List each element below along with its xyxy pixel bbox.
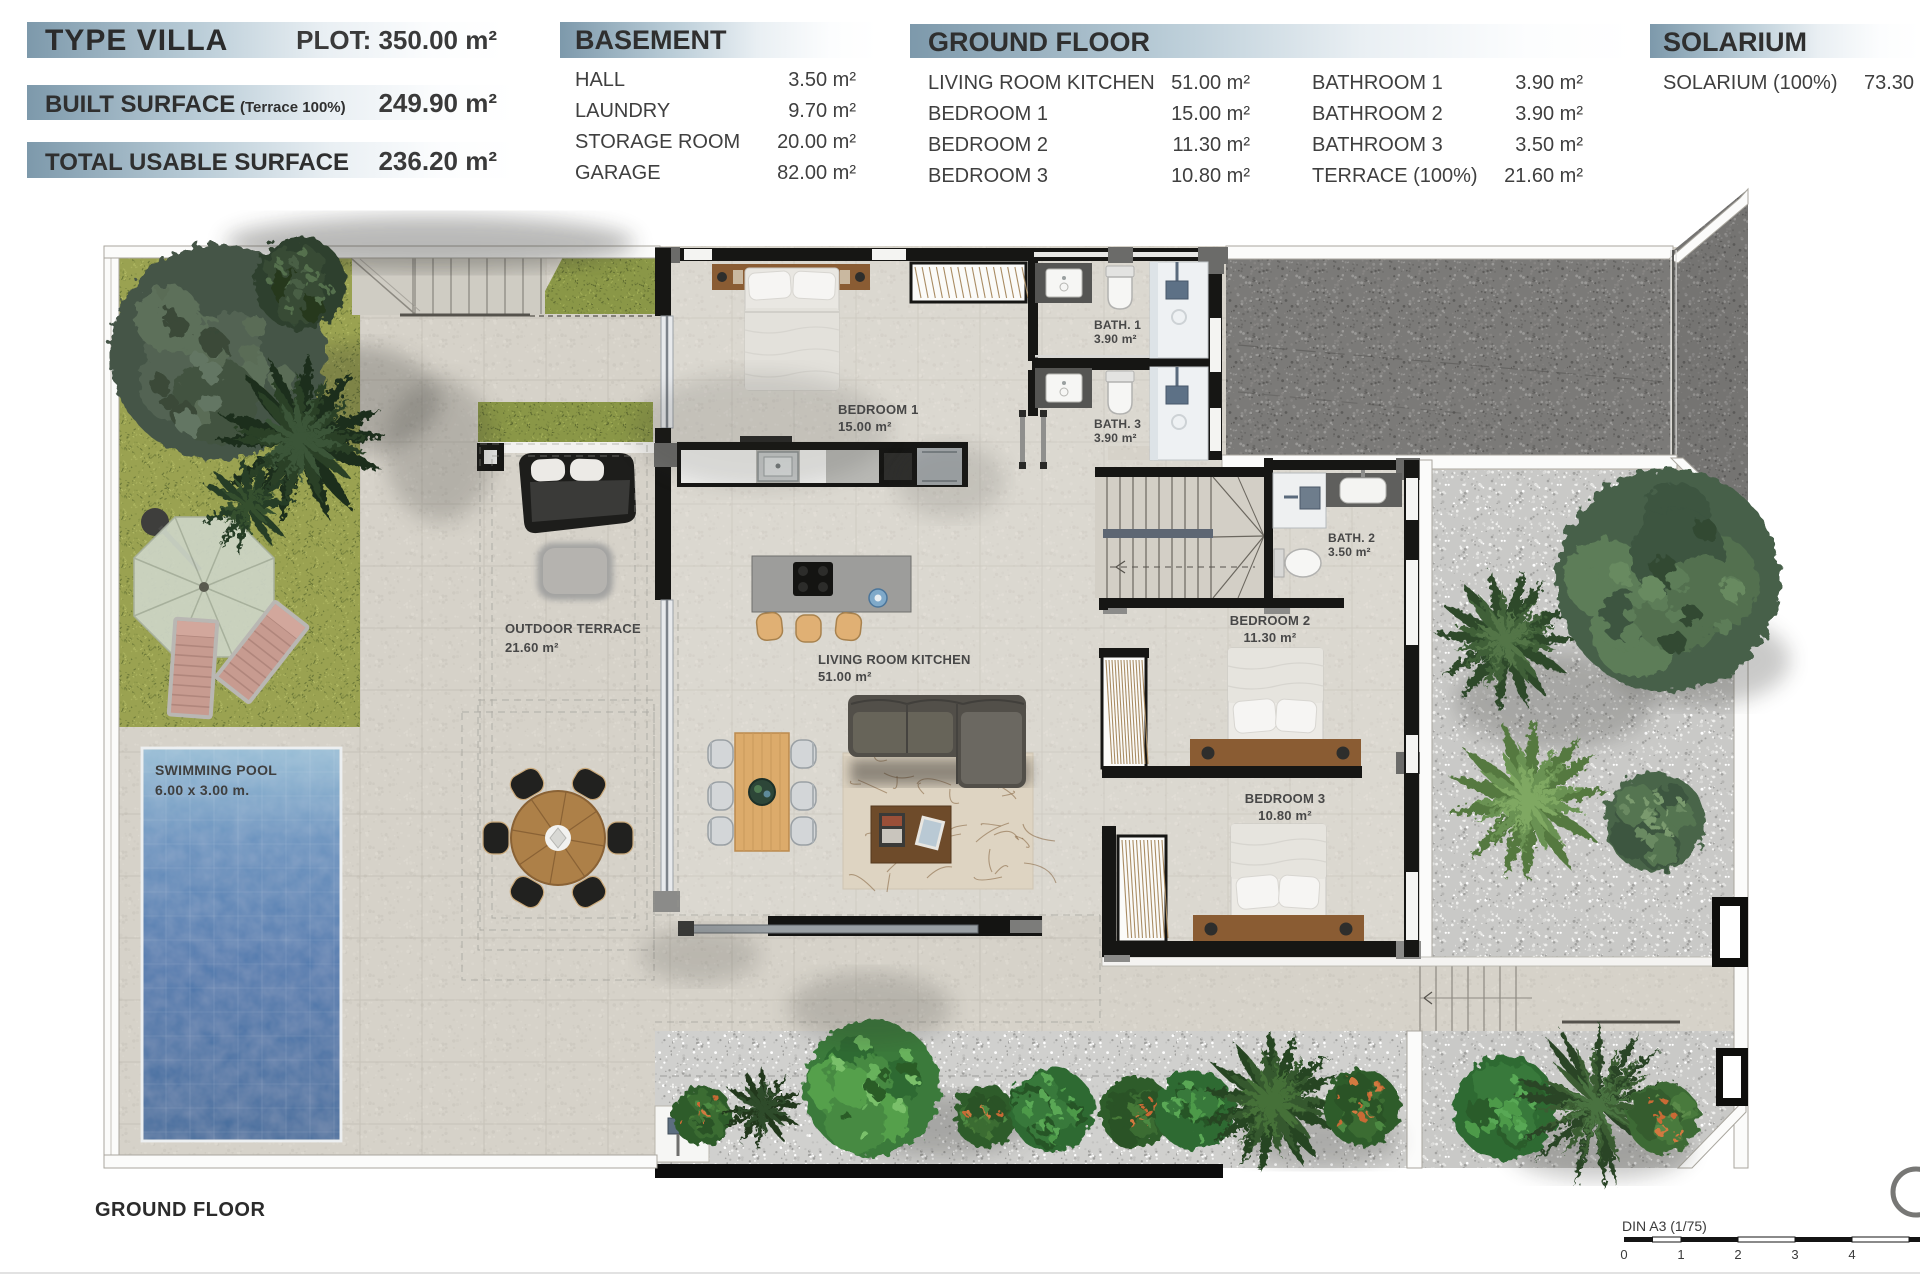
svg-text:9.70 m²: 9.70 m²: [788, 100, 856, 122]
svg-text:HALL: HALL: [575, 69, 625, 91]
svg-text:20.00 m²: 20.00 m²: [777, 131, 856, 153]
svg-text:GROUND FLOOR: GROUND FLOOR: [928, 27, 1150, 57]
svg-text:GARAGE: GARAGE: [575, 162, 661, 184]
svg-text:OUTDOOR TERRACE: OUTDOOR TERRACE: [505, 621, 641, 636]
svg-text:11.30 m²: 11.30 m²: [1244, 630, 1297, 645]
svg-text:3.90 m²: 3.90 m²: [1094, 332, 1137, 346]
svg-text:SWIMMING POOL: SWIMMING POOL: [155, 762, 277, 778]
svg-text:15.00 m²: 15.00 m²: [838, 419, 892, 434]
svg-text:PLOT: 350.00 m²: PLOT: 350.00 m²: [296, 25, 497, 55]
svg-text:(Terrace 100%): (Terrace 100%): [240, 99, 346, 116]
svg-text:11.30 m²: 11.30 m²: [1173, 134, 1251, 156]
svg-text:TYPE VILLA: TYPE VILLA: [45, 24, 228, 57]
svg-text:BEDROOM 3: BEDROOM 3: [928, 165, 1048, 187]
svg-text:BASEMENT: BASEMENT: [575, 25, 727, 55]
svg-text:BEDROOM 2: BEDROOM 2: [928, 134, 1048, 156]
svg-text:DIN A3 (1/75): DIN A3 (1/75): [1622, 1218, 1707, 1234]
svg-text:TOTAL USABLE SURFACE: TOTAL USABLE SURFACE: [45, 149, 349, 176]
svg-text:BEDROOM 1: BEDROOM 1: [838, 402, 919, 417]
svg-text:BEDROOM 1: BEDROOM 1: [928, 103, 1048, 125]
svg-text:2: 2: [1734, 1247, 1741, 1262]
svg-text:BATH. 1: BATH. 1: [1094, 318, 1141, 332]
svg-text:3.50 m²: 3.50 m²: [788, 69, 856, 91]
svg-text:3.50 m²: 3.50 m²: [1328, 545, 1371, 559]
svg-text:BATH. 3: BATH. 3: [1094, 417, 1141, 431]
svg-text:0: 0: [1620, 1247, 1627, 1262]
svg-text:3.90 m²: 3.90 m²: [1515, 72, 1583, 94]
svg-text:236.20 m²: 236.20 m²: [378, 146, 497, 176]
svg-text:SOLARIUM: SOLARIUM: [1663, 27, 1807, 57]
svg-text:21.60 m²: 21.60 m²: [1504, 165, 1583, 187]
svg-text:6.00 x 3.00 m.: 6.00 x 3.00 m.: [155, 782, 250, 798]
svg-text:SOLARIUM (100%): SOLARIUM (100%): [1663, 72, 1838, 94]
svg-text:4: 4: [1848, 1247, 1855, 1262]
svg-text:BATHROOM 1: BATHROOM 1: [1312, 72, 1443, 94]
svg-text:3.90 m²: 3.90 m²: [1094, 431, 1137, 445]
svg-text:TERRACE (100%): TERRACE (100%): [1312, 165, 1478, 187]
svg-text:LIVING ROOM KITCHEN: LIVING ROOM KITCHEN: [928, 72, 1155, 94]
svg-text:15.00 m²: 15.00 m²: [1171, 103, 1250, 125]
svg-text:BUILT SURFACE: BUILT SURFACE: [45, 91, 235, 118]
svg-text:1: 1: [1677, 1247, 1684, 1262]
svg-text:BATHROOM 2: BATHROOM 2: [1312, 103, 1443, 125]
svg-text:LIVING ROOM KITCHEN: LIVING ROOM KITCHEN: [818, 652, 971, 667]
svg-text:51.00 m²: 51.00 m²: [818, 669, 872, 684]
svg-text:BEDROOM 3: BEDROOM 3: [1245, 791, 1326, 806]
svg-text:3.50 m²: 3.50 m²: [1515, 134, 1583, 156]
svg-text:LAUNDRY: LAUNDRY: [575, 100, 670, 122]
svg-text:51.00 m²: 51.00 m²: [1171, 72, 1250, 94]
svg-text:3.90 m²: 3.90 m²: [1515, 103, 1583, 125]
svg-text:249.90 m²: 249.90 m²: [378, 88, 497, 118]
svg-text:BATHROOM 3: BATHROOM 3: [1312, 134, 1443, 156]
svg-text:21.60 m²: 21.60 m²: [505, 640, 559, 655]
svg-text:3: 3: [1791, 1247, 1798, 1262]
svg-text:BEDROOM 2: BEDROOM 2: [1230, 613, 1311, 628]
svg-text:10.80 m²: 10.80 m²: [1171, 165, 1250, 187]
svg-text:GROUND FLOOR: GROUND FLOOR: [95, 1199, 265, 1221]
svg-text:STORAGE ROOM: STORAGE ROOM: [575, 131, 740, 153]
svg-text:82.00 m²: 82.00 m²: [777, 162, 856, 184]
svg-text:73.30 m²: 73.30 m²: [1864, 72, 1920, 94]
svg-text:BATH. 2: BATH. 2: [1328, 531, 1375, 545]
svg-text:10.80 m²: 10.80 m²: [1258, 808, 1312, 823]
